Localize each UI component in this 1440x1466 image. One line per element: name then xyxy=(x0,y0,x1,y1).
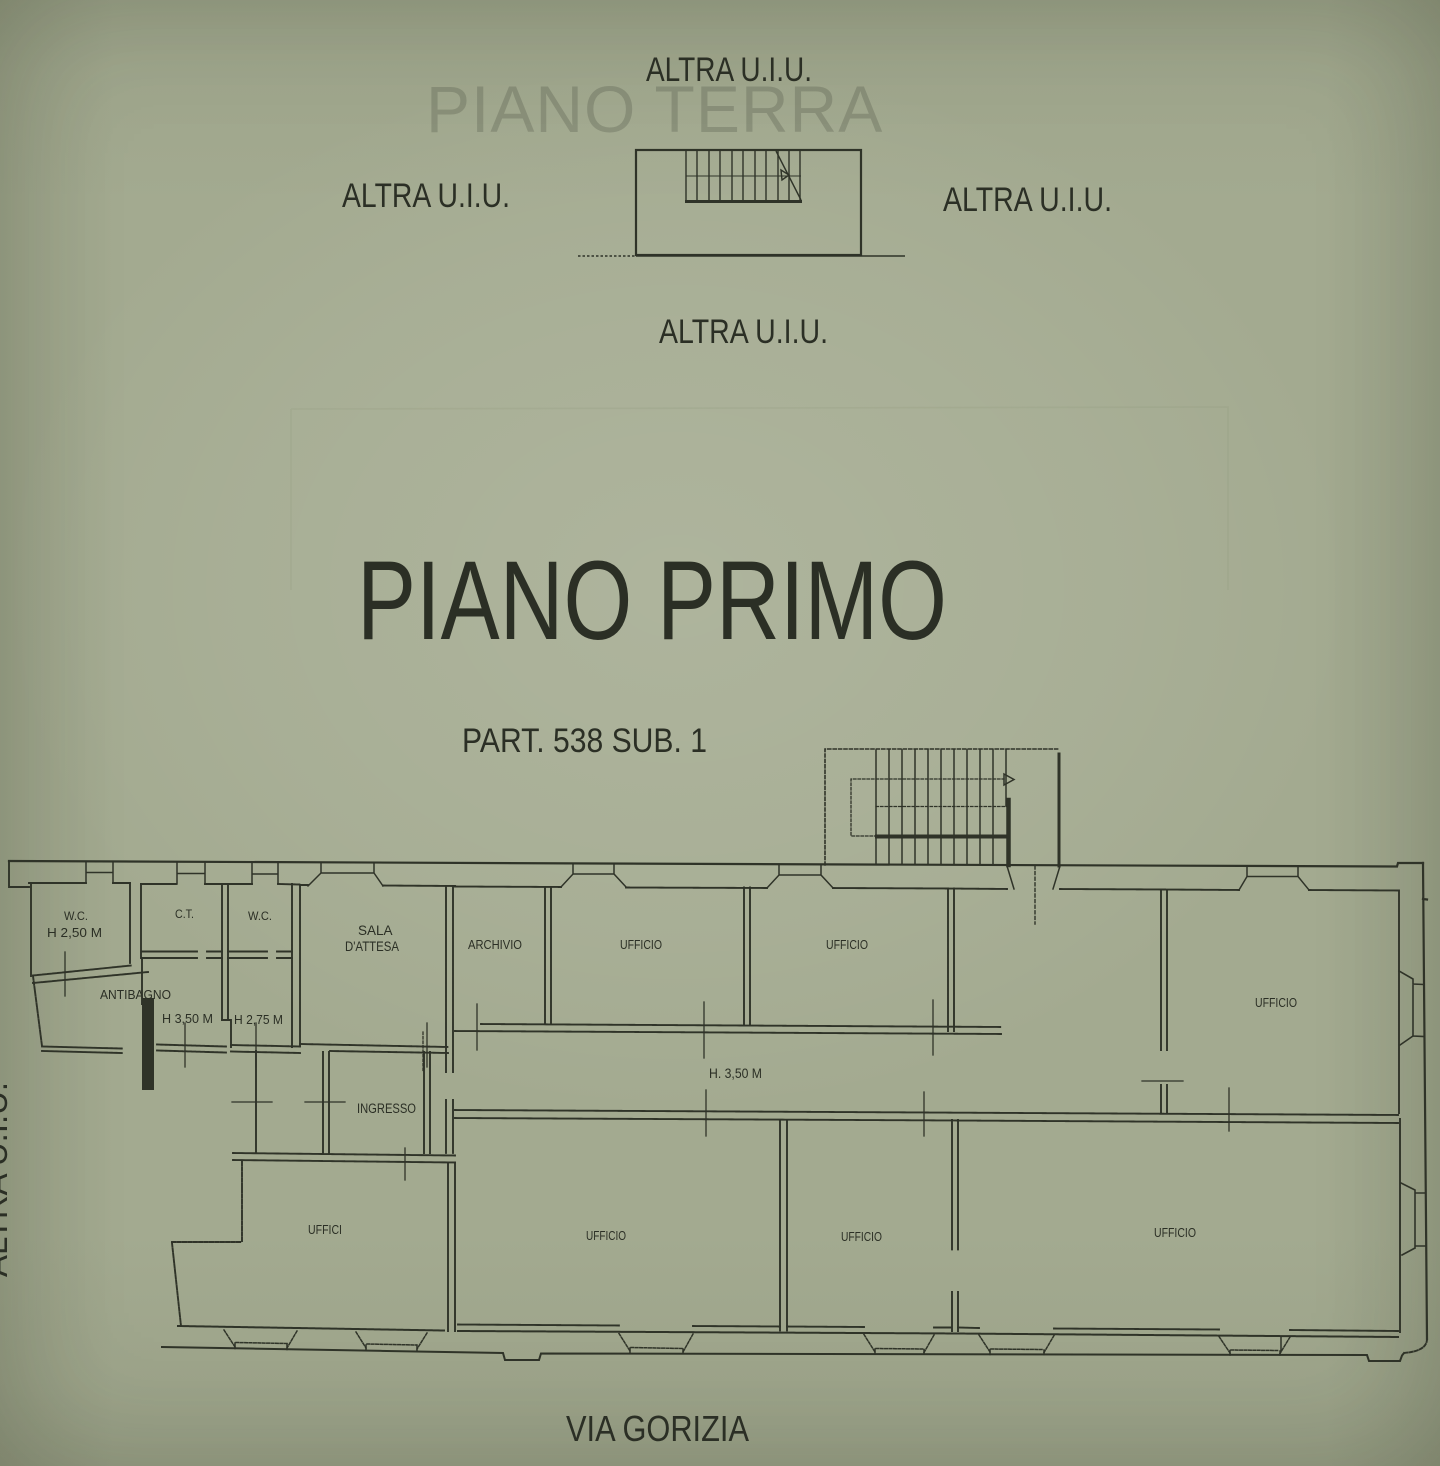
svg-text:UFFICIO: UFFICIO xyxy=(826,937,868,952)
svg-text:H. 3,50 M: H. 3,50 M xyxy=(709,1066,762,1081)
svg-text:ANTIBAGNO: ANTIBAGNO xyxy=(100,987,171,1002)
svg-text:UFFICIO: UFFICIO xyxy=(620,937,662,952)
svg-text:ALTRA U.I.U.: ALTRA U.I.U. xyxy=(659,313,828,351)
svg-text:ALTRA U.I.U.: ALTRA U.I.U. xyxy=(646,51,812,89)
svg-text:UFFICIO: UFFICIO xyxy=(586,1228,626,1243)
svg-text:H 2,50 M: H 2,50 M xyxy=(47,925,102,940)
svg-text:UFFICIO: UFFICIO xyxy=(1154,1225,1196,1240)
svg-text:PIANO PRIMO: PIANO PRIMO xyxy=(357,538,947,663)
svg-text:ARCHIVIO: ARCHIVIO xyxy=(468,937,522,952)
svg-text:ALTRA U.I.U.: ALTRA U.I.U. xyxy=(0,1082,14,1277)
svg-text:ALTRA U.I.U.: ALTRA U.I.U. xyxy=(943,181,1112,219)
svg-text:H 2,75 M: H 2,75 M xyxy=(234,1012,283,1027)
svg-text:W.C.: W.C. xyxy=(64,911,88,923)
svg-text:VIA GORIZIA: VIA GORIZIA xyxy=(566,1408,749,1449)
svg-text:UFFICIO: UFFICIO xyxy=(1255,995,1297,1010)
svg-text:W.C.: W.C. xyxy=(248,911,272,923)
svg-text:H 3,50 M: H 3,50 M xyxy=(162,1011,213,1026)
svg-text:INGRESSO: INGRESSO xyxy=(357,1101,416,1116)
svg-text:C.T.: C.T. xyxy=(175,909,194,921)
svg-text:D'ATTESA: D'ATTESA xyxy=(345,939,399,954)
svg-text:UFFICI: UFFICI xyxy=(308,1222,342,1237)
svg-text:UFFICIO: UFFICIO xyxy=(841,1229,882,1244)
svg-text:PART. 538 SUB. 1: PART. 538 SUB. 1 xyxy=(462,722,707,760)
svg-text:ALTRA U.I.U.: ALTRA U.I.U. xyxy=(342,177,510,215)
svg-text:SALA: SALA xyxy=(358,923,393,938)
